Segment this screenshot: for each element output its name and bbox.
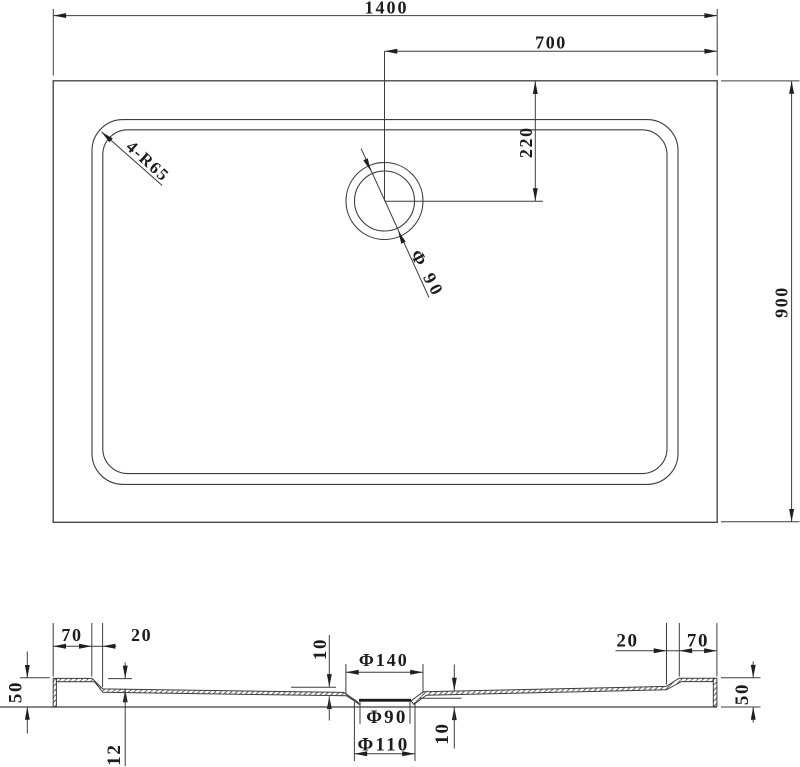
svg-text:20: 20 <box>131 625 152 645</box>
svg-text:50: 50 <box>5 681 26 703</box>
svg-text:Φ140: Φ140 <box>359 650 409 670</box>
svg-text:70: 70 <box>61 625 82 645</box>
svg-text:Φ90: Φ90 <box>366 707 407 728</box>
svg-text:220: 220 <box>516 126 536 158</box>
svg-text:20: 20 <box>616 631 638 652</box>
svg-text:12: 12 <box>104 743 125 765</box>
svg-text:Φ110: Φ110 <box>357 734 409 755</box>
svg-text:10: 10 <box>310 638 331 660</box>
svg-text:4-R65: 4-R65 <box>122 137 173 186</box>
svg-text:700: 700 <box>535 33 567 53</box>
svg-text:Φ 90: Φ 90 <box>407 246 449 301</box>
svg-text:70: 70 <box>687 630 709 651</box>
svg-text:50: 50 <box>732 683 753 705</box>
svg-text:10: 10 <box>432 722 453 744</box>
svg-text:900: 900 <box>772 286 792 318</box>
svg-text:1400: 1400 <box>365 0 409 17</box>
